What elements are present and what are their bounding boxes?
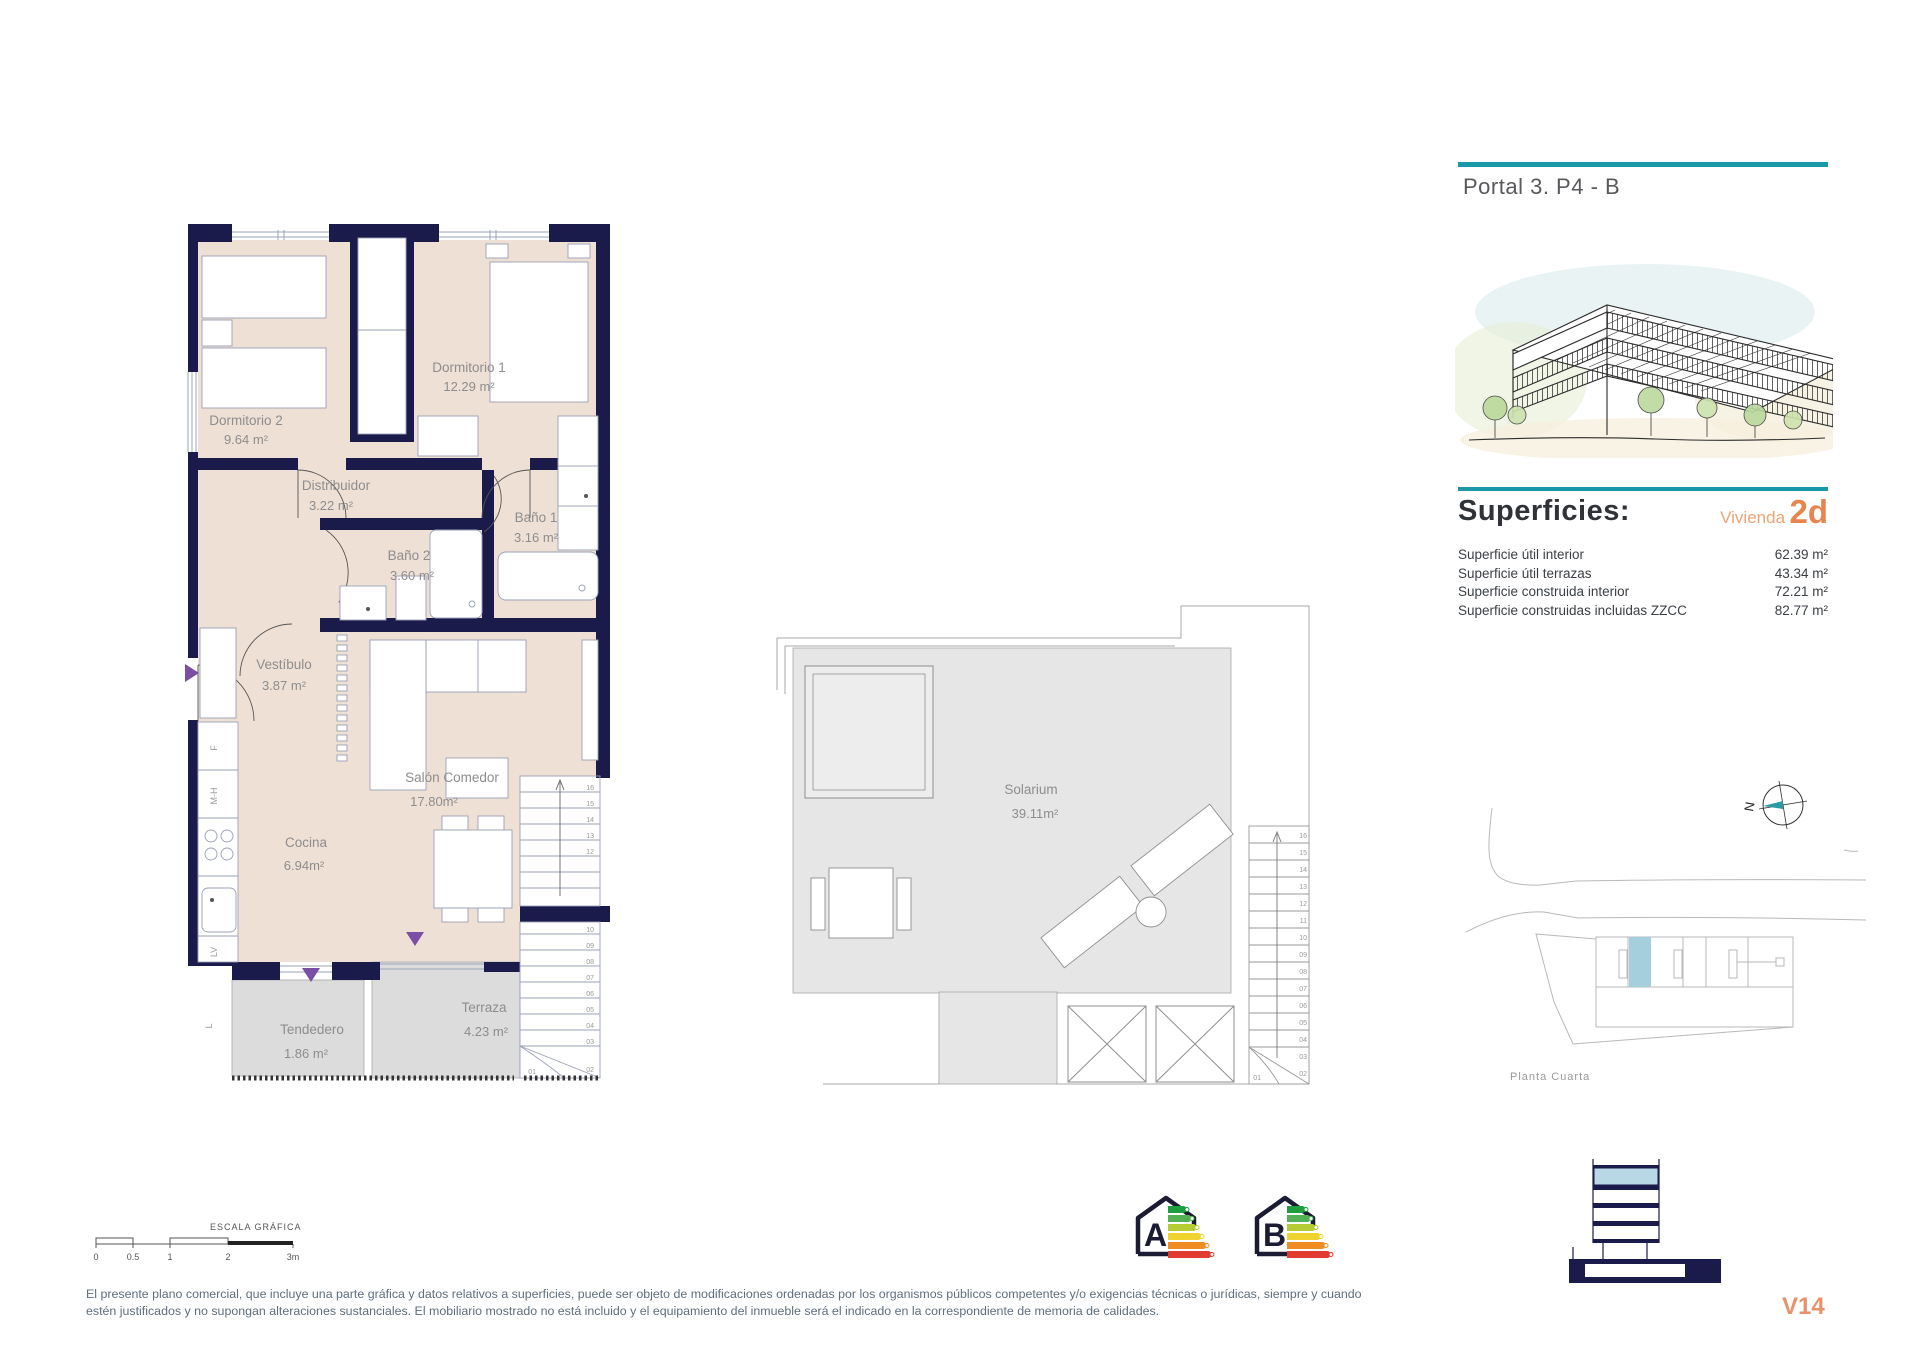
svg-text:Dormitorio 2: Dormitorio 2 (209, 413, 283, 428)
svg-text:Vestíbulo: Vestíbulo (256, 657, 312, 672)
svg-text:03: 03 (1299, 1054, 1307, 1061)
highlighted-unit (1629, 937, 1651, 987)
svg-text:12: 12 (1299, 901, 1307, 908)
header-rule (1458, 162, 1828, 167)
apartment-floor-plan: 1615 1413 12 1009 0807 0605 0403 0201 Do… (184, 220, 614, 1086)
svg-text:13: 13 (1299, 884, 1307, 891)
svg-text:16: 16 (586, 785, 594, 792)
site-plan: N Planta Cuarta (1448, 772, 1868, 1102)
svg-text:11: 11 (1300, 918, 1307, 925)
svg-text:3.87 m²: 3.87 m² (262, 678, 307, 693)
svg-text:04: 04 (1299, 1037, 1307, 1044)
svg-text:17.80m²: 17.80m² (410, 794, 458, 809)
svg-text:10: 10 (1299, 935, 1307, 942)
svg-text:08: 08 (586, 959, 594, 966)
compass-icon: N (1741, 781, 1807, 829)
svg-text:12: 12 (586, 849, 594, 856)
superficie-row: Superficie útil interior62.39 m² (1458, 546, 1828, 565)
building-sketch (1455, 250, 1833, 458)
superficies-table: Superficie útil interior62.39 m² Superfi… (1458, 546, 1828, 620)
svg-text:01: 01 (528, 1069, 536, 1076)
svg-text:10: 10 (586, 927, 594, 934)
svg-text:Dormitorio 1: Dormitorio 1 (432, 360, 506, 375)
scale-bar: ESCALA GRÁFICA 0 0.5 1 2 3m (88, 1218, 318, 1264)
superficies-title: Superficies: (1458, 495, 1630, 528)
svg-text:ESCALA GRÁFICA: ESCALA GRÁFICA (210, 1222, 302, 1232)
svg-text:Salón Comedor: Salón Comedor (405, 770, 499, 785)
building-section (1563, 1155, 1728, 1295)
svg-text:A: A (1144, 1217, 1167, 1253)
plan-sheet: 1615 1413 12 1009 0807 0605 0403 0201 Do… (0, 0, 1920, 1357)
svg-text:9.64 m²: 9.64 m² (224, 432, 269, 447)
disclaimer-line-2: estén justificados y no supongan alterac… (86, 1303, 1371, 1320)
svg-text:B: B (1263, 1217, 1286, 1253)
svg-text:Tendedero: Tendedero (280, 1022, 344, 1037)
svg-text:07: 07 (1299, 986, 1307, 993)
solarium-plan: 1615 1413 1211 1009 0807 0605 0403 0201 … (763, 598, 1313, 1086)
svg-text:F: F (209, 745, 219, 751)
svg-text:3.22 m²: 3.22 m² (309, 498, 354, 513)
svg-text:Baño 2: Baño 2 (388, 548, 431, 563)
energy-certificates: A B (1128, 1186, 1352, 1260)
svg-text:09: 09 (1299, 952, 1307, 959)
energy-label-a-icon: A (1128, 1186, 1233, 1260)
svg-text:14: 14 (1299, 867, 1307, 874)
section-highlight-floor (1594, 1168, 1658, 1185)
svg-text:Baño 1: Baño 1 (515, 510, 558, 525)
vivienda-label: Vivienda (1720, 508, 1785, 527)
superficie-row: Superficie útil terrazas43.34 m² (1458, 565, 1828, 584)
svg-text:05: 05 (586, 1007, 594, 1014)
svg-text:1.86 m²: 1.86 m² (284, 1046, 329, 1061)
superficies-header: Superficies: Vivienda 2d (1458, 495, 1828, 528)
svg-text:3.16 m²: 3.16 m² (514, 530, 559, 545)
svg-text:M-H: M-H (209, 788, 219, 805)
energy-label-b-icon: B (1247, 1186, 1352, 1260)
svg-text:05: 05 (1299, 1020, 1307, 1027)
svg-text:16: 16 (1299, 833, 1307, 840)
svg-text:02: 02 (1299, 1071, 1307, 1078)
site-plan-caption: Planta Cuarta (1510, 1071, 1590, 1083)
svg-text:09: 09 (586, 943, 594, 950)
vivienda-code: 2d (1789, 493, 1828, 530)
legal-disclaimer: El presente plano comercial, que incluye… (86, 1286, 1371, 1319)
page-title: Portal 3. P4 - B (1463, 174, 1620, 200)
svg-text:3m: 3m (287, 1252, 300, 1262)
svg-text:Distribuidor: Distribuidor (302, 478, 371, 493)
shafts (1068, 1006, 1234, 1082)
svg-text:15: 15 (1299, 850, 1307, 857)
svg-text:3.60 m²: 3.60 m² (390, 568, 435, 583)
disclaimer-line-1: El presente plano comercial, que incluye… (86, 1286, 1371, 1303)
svg-text:13: 13 (586, 833, 594, 840)
svg-text:04: 04 (586, 1023, 594, 1030)
svg-text:02: 02 (586, 1067, 594, 1074)
version-code: V14 (1782, 1293, 1825, 1321)
svg-text:LV: LV (209, 947, 219, 957)
superficie-row: Superficie construida interior72.21 m² (1458, 583, 1828, 602)
svg-text:4.23 m²: 4.23 m² (464, 1024, 509, 1039)
jacuzzi (805, 666, 933, 798)
svg-text:14: 14 (586, 817, 594, 824)
superficies-rule (1458, 487, 1828, 491)
svg-text:01: 01 (1253, 1075, 1261, 1082)
svg-text:06: 06 (1299, 1003, 1307, 1010)
svg-text:0.5: 0.5 (127, 1252, 140, 1262)
svg-text:6.94m²: 6.94m² (284, 858, 325, 873)
svg-text:07: 07 (586, 975, 594, 982)
svg-text:1: 1 (167, 1252, 172, 1262)
svg-text:12.29 m²: 12.29 m² (443, 379, 495, 394)
svg-text:Cocina: Cocina (285, 835, 328, 850)
svg-text:0: 0 (93, 1252, 98, 1262)
svg-text:L: L (204, 1023, 214, 1028)
svg-text:06: 06 (586, 991, 594, 998)
svg-text:2: 2 (225, 1252, 230, 1262)
svg-text:Solarium: Solarium (1004, 782, 1057, 797)
svg-text:Terraza: Terraza (461, 1000, 507, 1015)
svg-text:08: 08 (1299, 969, 1307, 976)
svg-text:03: 03 (586, 1039, 594, 1046)
svg-text:N: N (1741, 801, 1757, 813)
superficie-row: Superficie construidas incluidas ZZCC82.… (1458, 602, 1828, 621)
svg-text:39.11m²: 39.11m² (1012, 806, 1059, 821)
svg-text:15: 15 (586, 801, 594, 808)
